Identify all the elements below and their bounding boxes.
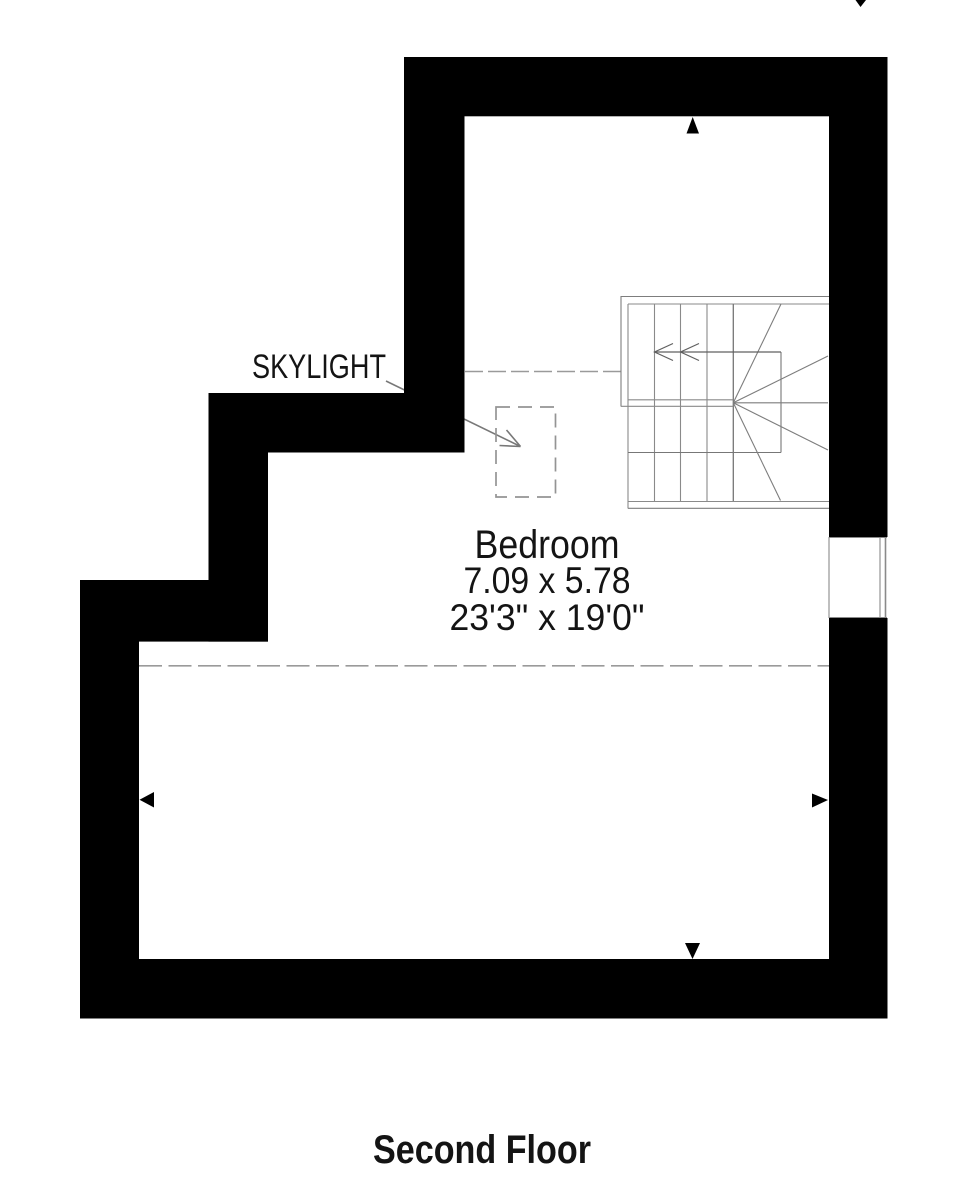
svg-text:7.09 x 5.78: 7.09 x 5.78 <box>464 560 631 601</box>
svg-text:Second Floor: Second Floor <box>373 1128 591 1172</box>
svg-text:23'3" x 19'0": 23'3" x 19'0" <box>450 597 645 638</box>
svg-text:SKYLIGHT: SKYLIGHT <box>252 348 386 386</box>
